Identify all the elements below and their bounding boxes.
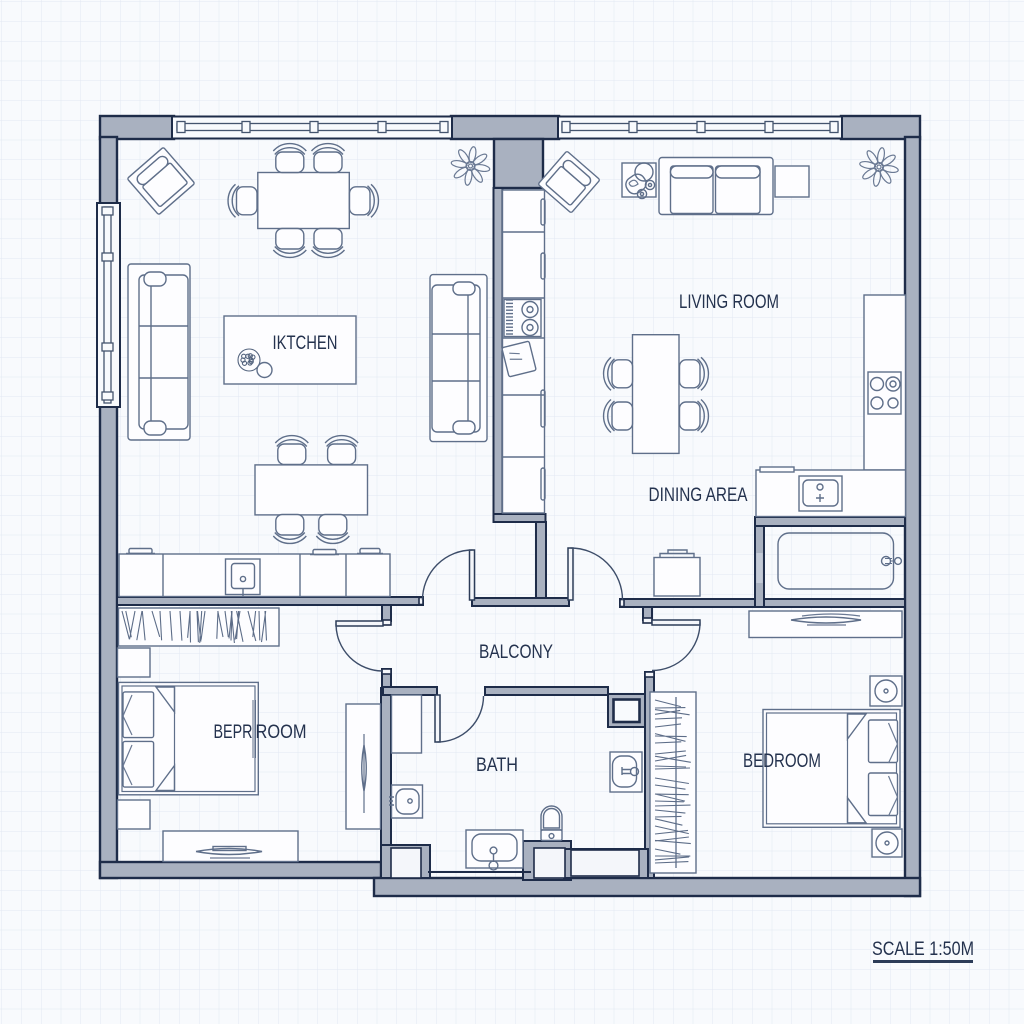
- svg-text:ROOM: ROOM: [256, 722, 307, 743]
- svg-text:DINING AREA: DINING AREA: [649, 485, 748, 506]
- svg-text:BEDROOM: BEDROOM: [743, 751, 821, 772]
- svg-text:BATH: BATH: [476, 755, 518, 776]
- svg-text:BEPR: BEPR: [214, 722, 253, 743]
- svg-text:BALCONY: BALCONY: [479, 642, 553, 663]
- svg-text:IKTCHEN: IKTCHEN: [273, 333, 338, 354]
- svg-text:LIVING ROOM: LIVING ROOM: [679, 292, 779, 313]
- svg-text:SCALE 1:50M: SCALE 1:50M: [872, 939, 974, 960]
